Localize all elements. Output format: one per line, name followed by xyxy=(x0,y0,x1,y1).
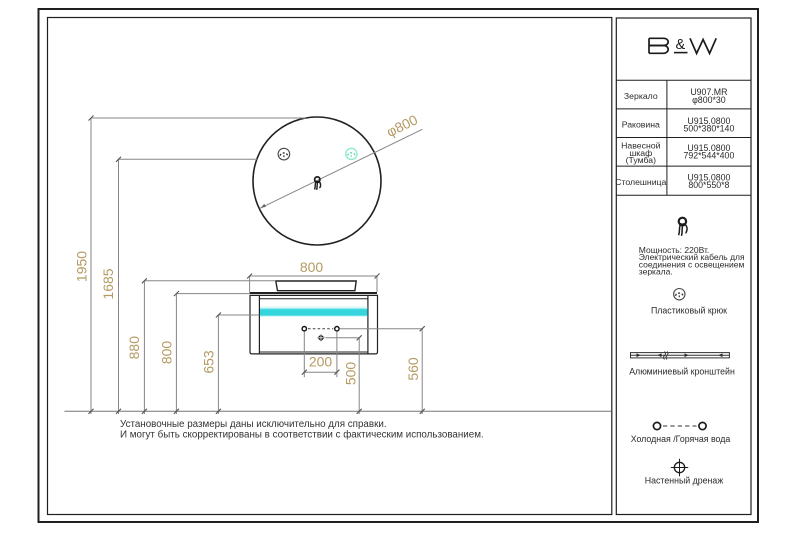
svg-text:φ800: φ800 xyxy=(384,111,420,140)
svg-text:1950: 1950 xyxy=(74,251,90,282)
svg-text:560: 560 xyxy=(405,357,421,381)
svg-text:φ800*30: φ800*30 xyxy=(692,95,726,105)
svg-text:200: 200 xyxy=(309,353,333,369)
svg-text:Установочные размеры даны искл: Установочные размеры даны исключительно … xyxy=(120,419,387,430)
svg-text:Столешница: Столешница xyxy=(615,177,666,187)
svg-text:653: 653 xyxy=(200,350,216,374)
svg-text:Настенный дренаж: Настенный дренаж xyxy=(645,476,724,486)
svg-text:Холодная /Горячая вода: Холодная /Горячая вода xyxy=(631,434,731,444)
svg-text:&: & xyxy=(675,37,685,53)
svg-text:800: 800 xyxy=(300,259,324,275)
svg-text:Пластиковый крюк: Пластиковый крюк xyxy=(651,305,727,315)
svg-text:500*380*140: 500*380*140 xyxy=(683,123,734,133)
svg-text:Раковина: Раковина xyxy=(622,120,660,130)
svg-text:зеркала.: зеркала. xyxy=(639,267,673,277)
svg-text:800: 800 xyxy=(158,341,174,365)
svg-text:792*544*400: 792*544*400 xyxy=(683,151,734,161)
svg-text:500: 500 xyxy=(343,362,359,386)
svg-text:Алюминиевый кронштейн: Алюминиевый кронштейн xyxy=(629,366,735,376)
svg-text:Зеркало: Зеркало xyxy=(624,91,658,101)
svg-text:И могут быть скорректированы в: И могут быть скорректированы в соответст… xyxy=(120,429,484,440)
svg-text:800*550*8: 800*550*8 xyxy=(688,180,729,190)
svg-text:880: 880 xyxy=(126,336,142,360)
svg-text:1685: 1685 xyxy=(100,268,116,299)
svg-text:(Тумба): (Тумба) xyxy=(626,155,656,165)
